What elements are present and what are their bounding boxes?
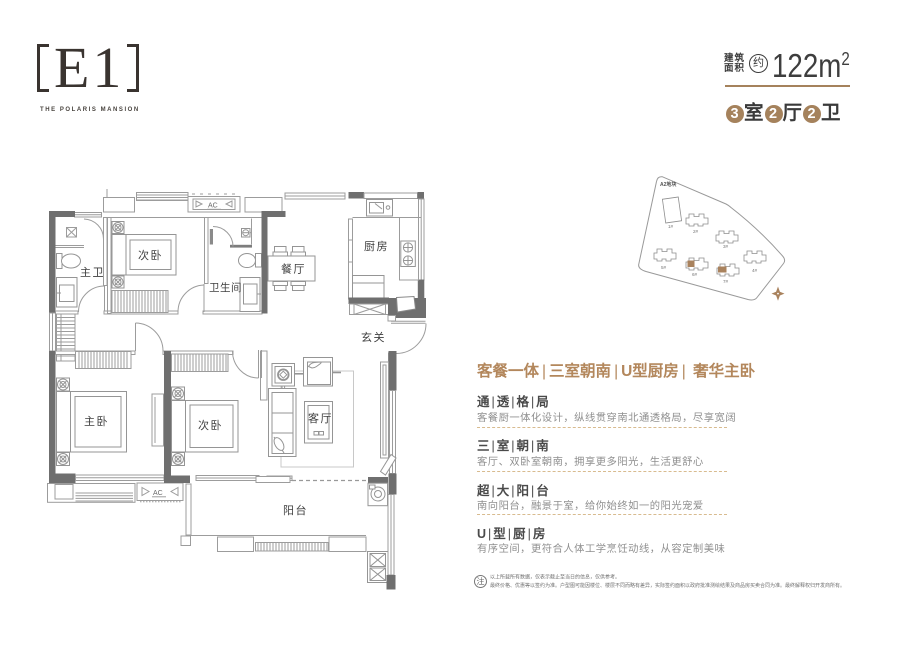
svg-text:A2地块: A2地块 [660,181,677,188]
svg-text:次卧: 次卧 [138,248,163,262]
svg-text:客厅: 客厅 [308,411,333,425]
svg-text:2#: 2# [693,229,699,234]
svg-text:次卧: 次卧 [198,418,223,432]
svg-text:AC: AC [153,490,163,497]
svg-text:3#: 3# [723,244,729,249]
svg-text:卫生间: 卫生间 [209,281,242,294]
svg-text:主卧: 主卧 [84,415,109,428]
svg-text:6#: 6# [692,272,698,277]
svg-text:5#: 5# [661,265,667,270]
svg-text:AC: AC [208,203,218,210]
svg-text:玄关: 玄关 [361,330,386,344]
svg-text:厨房: 厨房 [364,240,389,253]
svg-text:1#: 1# [668,224,674,229]
svg-text:阳台: 阳台 [283,503,308,517]
svg-text:4#: 4# [752,268,758,273]
svg-text:主卫: 主卫 [80,266,105,279]
svg-text:7#: 7# [723,279,729,284]
svg-text:餐厅: 餐厅 [281,262,306,276]
